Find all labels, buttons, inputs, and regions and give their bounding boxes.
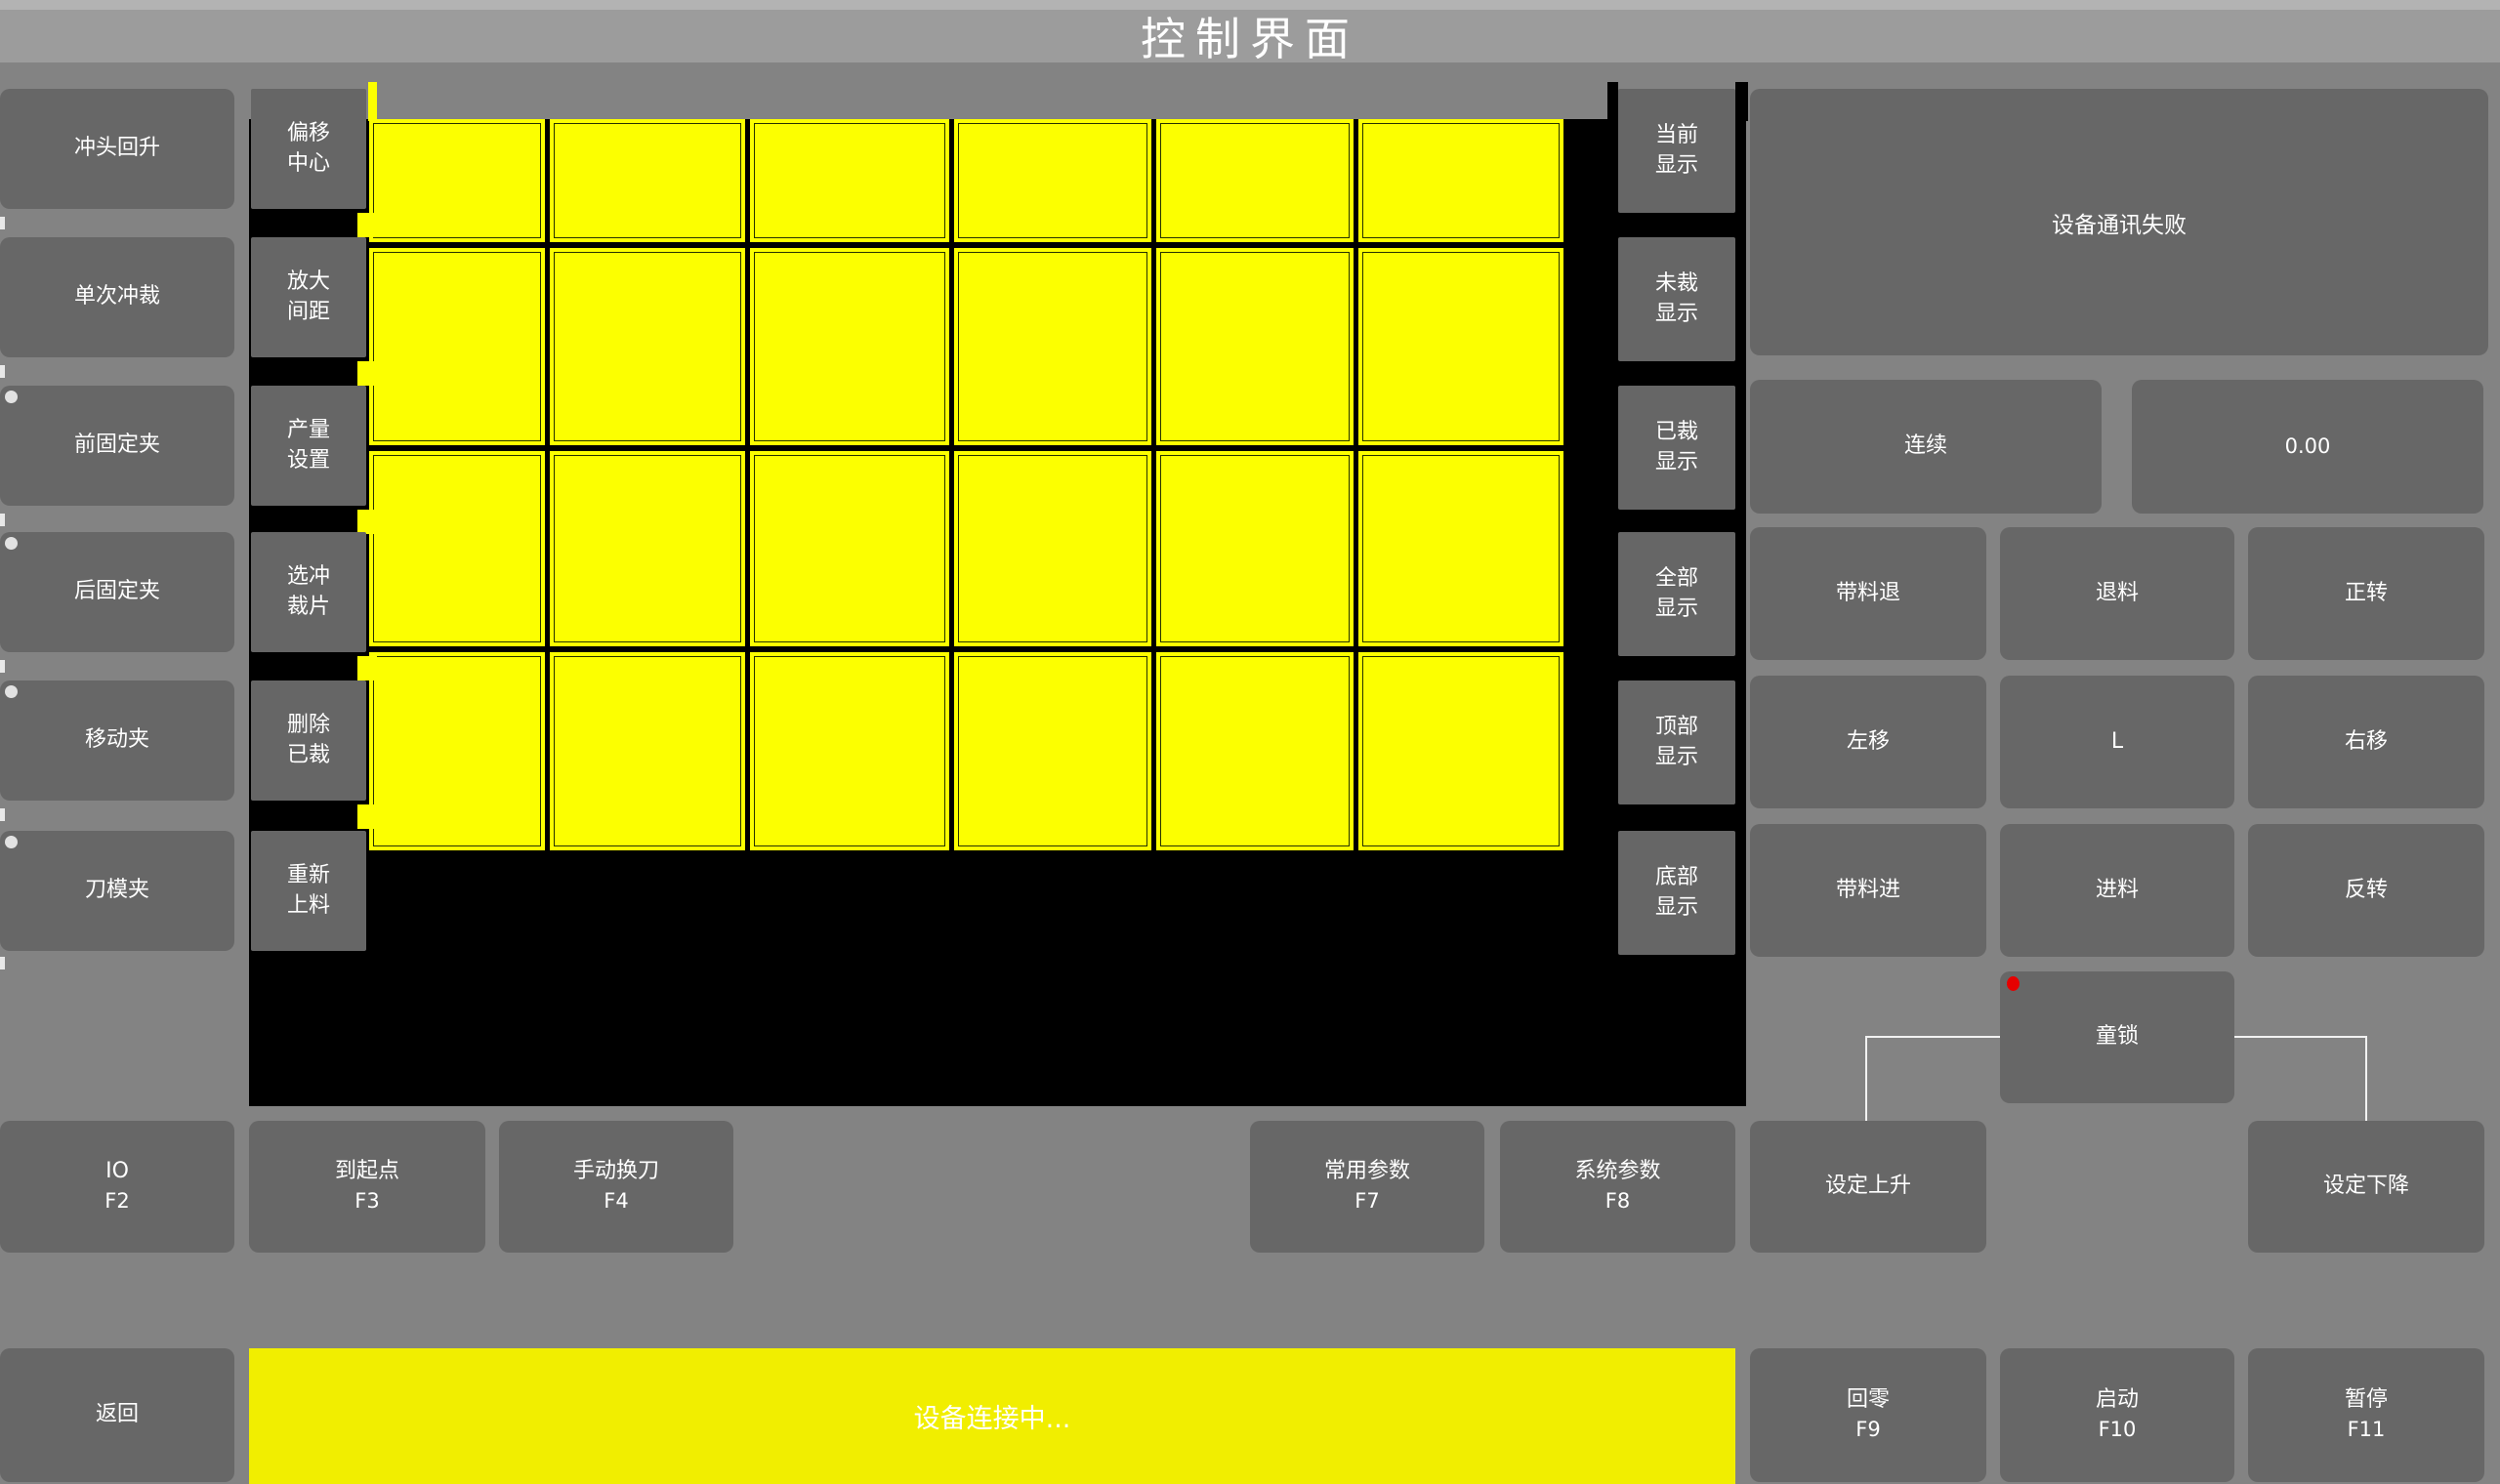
grid-cell[interactable] [750, 119, 949, 242]
button-label: 启动 [2096, 1385, 2139, 1416]
left-edge-tick [0, 808, 5, 821]
button-single-punch[interactable]: 单次冲裁 [0, 237, 234, 357]
canvas-notch [1735, 82, 1748, 121]
button-label: 中心 [287, 149, 330, 180]
grid-edge-tick [368, 82, 377, 121]
button-label: 手动换刀 [573, 1157, 659, 1187]
button-label: L [2111, 727, 2123, 758]
button-select-pieces[interactable]: 选冲 裁片 [251, 532, 366, 652]
button-fkey: F11 [2348, 1416, 2386, 1444]
grid-cell[interactable] [369, 652, 545, 850]
grid-cell[interactable] [954, 652, 1151, 850]
button-label: 退料 [2096, 579, 2139, 609]
page-title: 控制界面 [1141, 4, 1359, 68]
button-label: 左移 [1847, 727, 1890, 758]
button-pause-f11[interactable]: 暂停 F11 [2248, 1348, 2484, 1482]
grid-cell[interactable] [750, 451, 949, 646]
button-move-left[interactable]: 左移 [1750, 676, 1986, 808]
button-move-right[interactable]: 右移 [2248, 676, 2484, 808]
button-label: 进料 [2096, 876, 2139, 906]
grid-edge-tick [357, 213, 377, 237]
grid-cell[interactable] [369, 451, 545, 646]
grid-cell[interactable] [1358, 652, 1563, 850]
button-label: 已裁 [1655, 418, 1698, 448]
button-label: 前固定夹 [74, 431, 160, 461]
button-enlarge-spacing[interactable]: 放大 间距 [251, 237, 366, 357]
communication-status-panel: 设备通讯失败 [1750, 89, 2488, 355]
button-label: 带料进 [1836, 876, 1900, 906]
button-strip-forward[interactable]: 带料进 [1750, 824, 1986, 957]
button-label: 删除 [287, 711, 330, 741]
button-fkey: F4 [604, 1187, 628, 1216]
bracket-line [1865, 1036, 1867, 1121]
grid-edge-tick [357, 510, 377, 534]
button-to-origin-f3[interactable]: 到起点 F3 [249, 1121, 485, 1253]
title-bar: 控制界面 [0, 10, 2500, 62]
grid-edge-tick [357, 804, 377, 829]
control-screen: 控制界面 冲头回升 单次冲裁 前固定夹 后固定夹 移动夹 刀模夹 偏移 [0, 0, 2500, 1484]
grid-cell[interactable] [550, 248, 745, 445]
button-label: 童锁 [2096, 1022, 2139, 1052]
clamp-indicator-dot [5, 836, 18, 848]
button-label: 已裁 [287, 741, 330, 771]
button-child-lock[interactable]: 童锁 [2000, 971, 2234, 1103]
button-show-bottom[interactable]: 底部 显示 [1618, 831, 1735, 955]
button-label: 后固定夹 [74, 577, 160, 607]
left-edge-tick [0, 217, 5, 229]
button-show-uncut[interactable]: 未裁 显示 [1618, 237, 1735, 361]
grid-cell[interactable] [954, 119, 1151, 242]
button-moving-clamp[interactable]: 移动夹 [0, 680, 234, 801]
button-label: 间距 [287, 298, 330, 328]
grid-cell[interactable] [369, 248, 545, 445]
grid-edge-tick [357, 656, 377, 680]
piece-grid [369, 119, 1563, 850]
grid-cell[interactable] [550, 652, 745, 850]
button-die-clamp[interactable]: 刀模夹 [0, 831, 234, 951]
button-common-params-f7[interactable]: 常用参数 F7 [1250, 1121, 1484, 1253]
canvas-notch [1607, 82, 1618, 121]
button-continuous-mode[interactable]: 连续 [1750, 380, 2102, 514]
left-edge-tick [0, 957, 5, 969]
button-home-f9[interactable]: 回零 F9 [1750, 1348, 1986, 1482]
value-text: 0.00 [2285, 433, 2331, 461]
child-lock-indicator [2007, 976, 2020, 991]
button-start-f10[interactable]: 启动 F10 [2000, 1348, 2234, 1482]
button-label: 设置 [287, 446, 330, 476]
button-label: 右移 [2345, 727, 2388, 758]
button-fkey: F9 [1855, 1416, 1880, 1444]
button-reload-material[interactable]: 重新 上料 [251, 831, 366, 951]
button-back[interactable]: 返回 [0, 1348, 234, 1482]
button-fkey: F8 [1605, 1187, 1630, 1216]
button-yield-settings[interactable]: 产量 设置 [251, 386, 366, 506]
button-show-all[interactable]: 全部 显示 [1618, 532, 1735, 656]
button-label: 移动夹 [85, 725, 149, 756]
button-show-cut[interactable]: 已裁 显示 [1618, 386, 1735, 510]
clamp-indicator-dot [5, 685, 18, 698]
button-reverse-rotate[interactable]: 反转 [2248, 824, 2484, 957]
button-show-current[interactable]: 当前 显示 [1618, 89, 1735, 213]
grid-cell[interactable] [750, 248, 949, 445]
grid-cell[interactable] [750, 652, 949, 850]
button-label: 裁片 [287, 593, 330, 623]
button-label: 放大 [287, 268, 330, 298]
button-set-fall[interactable]: 设定下降 [2248, 1121, 2484, 1253]
button-strip-back[interactable]: 带料退 [1750, 527, 1986, 660]
button-label: 设定上升 [1825, 1172, 1911, 1202]
connection-status-text: 设备连接中... [914, 1397, 1071, 1435]
button-label: 反转 [2345, 876, 2388, 906]
button-label: 刀模夹 [85, 876, 149, 906]
button-label: IO [105, 1157, 129, 1187]
button-label: 显示 [1655, 151, 1698, 182]
button-label: 选冲 [287, 562, 330, 593]
left-edge-tick [0, 660, 5, 673]
button-punch-return[interactable]: 冲头回升 [0, 89, 234, 209]
connection-status-bar: 设备连接中... [249, 1348, 1735, 1484]
grid-cell[interactable] [1156, 248, 1354, 445]
button-label: 单次冲裁 [74, 282, 160, 312]
button-label: 常用参数 [1324, 1157, 1410, 1187]
value-display: 0.00 [2132, 380, 2483, 514]
button-feed[interactable]: 进料 [2000, 824, 2234, 957]
button-set-rise[interactable]: 设定上升 [1750, 1121, 1986, 1253]
button-label: 当前 [1655, 121, 1698, 151]
button-forward-rotate[interactable]: 正转 [2248, 527, 2484, 660]
button-label: 回零 [1847, 1385, 1890, 1416]
grid-cell[interactable] [954, 451, 1151, 646]
button-label: 正转 [2345, 579, 2388, 609]
clamp-indicator-dot [5, 537, 18, 550]
button-fkey: F2 [104, 1187, 129, 1216]
grid-edge-tick [357, 361, 377, 386]
button-label: 显示 [1655, 893, 1698, 924]
grid-cell[interactable] [1358, 248, 1563, 445]
communication-status-text: 设备通讯失败 [2052, 206, 2187, 239]
left-edge-tick [0, 365, 5, 378]
button-label: 带料退 [1836, 579, 1900, 609]
grid-cell[interactable] [1358, 119, 1563, 242]
bracket-line [2365, 1036, 2367, 1121]
button-label: 冲头回升 [74, 134, 160, 164]
button-label: 设定下降 [2323, 1172, 2409, 1202]
grid-cell[interactable] [1358, 451, 1563, 646]
button-label: 暂停 [2345, 1385, 2388, 1416]
button-label: 连续 [1904, 432, 1947, 462]
button-offset-center[interactable]: 偏移 中心 [251, 89, 366, 209]
button-label: 产量 [287, 416, 330, 446]
button-l[interactable]: L [2000, 676, 2234, 808]
clamp-indicator-dot [5, 391, 18, 403]
button-show-top[interactable]: 顶部 显示 [1618, 680, 1735, 804]
button-label: 到起点 [335, 1157, 399, 1187]
button-unload[interactable]: 退料 [2000, 527, 2234, 660]
button-rear-clamp[interactable]: 后固定夹 [0, 532, 234, 652]
button-label: 返回 [96, 1400, 139, 1430]
button-label: 重新 [287, 861, 330, 891]
grid-cell[interactable] [550, 451, 745, 646]
button-manual-tool-change-f4[interactable]: 手动换刀 F4 [499, 1121, 733, 1253]
button-fkey: F7 [1354, 1187, 1379, 1216]
button-fkey: F10 [2099, 1416, 2137, 1444]
button-io-f2[interactable]: IO F2 [0, 1121, 234, 1253]
grid-cell[interactable] [1156, 451, 1354, 646]
button-label: 顶部 [1655, 713, 1698, 743]
button-label: 未裁 [1655, 269, 1698, 300]
button-label: 显示 [1655, 448, 1698, 478]
grid-cell[interactable] [1156, 652, 1354, 850]
grid-cell[interactable] [1156, 119, 1354, 242]
button-delete-cut[interactable]: 删除 已裁 [251, 680, 366, 801]
button-label: 显示 [1655, 743, 1698, 773]
grid-cell[interactable] [369, 119, 545, 242]
button-label: 偏移 [287, 119, 330, 149]
button-label: 系统参数 [1574, 1157, 1660, 1187]
button-label: 全部 [1655, 564, 1698, 595]
button-label: 上料 [287, 891, 330, 922]
left-edge-tick [0, 514, 5, 526]
grid-cell[interactable] [954, 248, 1151, 445]
button-front-clamp[interactable]: 前固定夹 [0, 386, 234, 506]
button-fkey: F3 [354, 1187, 379, 1216]
grid-cell[interactable] [550, 119, 745, 242]
button-system-params-f8[interactable]: 系统参数 F8 [1500, 1121, 1735, 1253]
button-label: 显示 [1655, 595, 1698, 625]
button-label: 显示 [1655, 300, 1698, 330]
button-label: 底部 [1655, 863, 1698, 893]
